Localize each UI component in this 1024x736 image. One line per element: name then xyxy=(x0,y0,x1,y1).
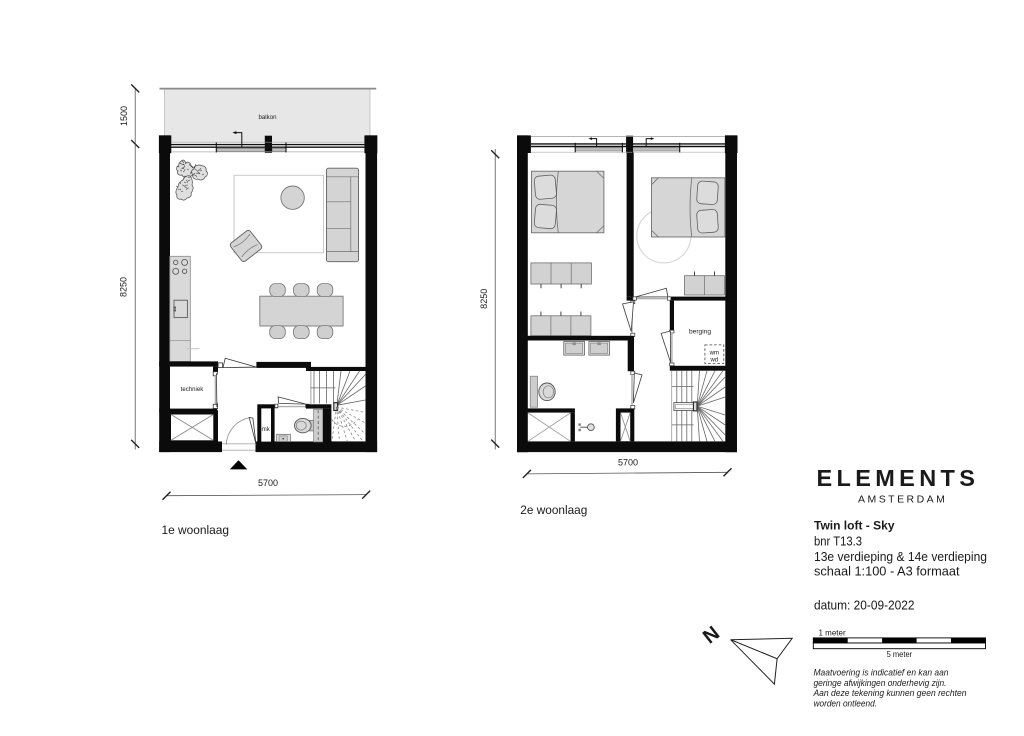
svg-text:5700: 5700 xyxy=(258,478,278,488)
svg-text:1500: 1500 xyxy=(119,106,129,126)
svg-text:2e woonlaag: 2e woonlaag xyxy=(520,503,587,517)
svg-text:berging: berging xyxy=(689,328,711,335)
svg-text:geringe afwijkingen onderhevig: geringe afwijkingen onderhevig zijn. xyxy=(814,678,947,688)
svg-text:1e woonlaag: 1e woonlaag xyxy=(162,523,230,537)
svg-text:wm: wm xyxy=(709,351,719,357)
svg-text:balkon: balkon xyxy=(259,114,277,121)
svg-text:Maatvoering is indicatief en k: Maatvoering is indicatief en kan aan xyxy=(814,668,949,678)
svg-text:AMSTERDAM: AMSTERDAM xyxy=(858,494,948,506)
svg-text:Aan deze tekening kunnen geen: Aan deze tekening kunnen geen rechten xyxy=(813,688,967,698)
svg-text:8250: 8250 xyxy=(119,277,129,297)
svg-text:mk: mk xyxy=(262,426,271,433)
svg-text:datum: 20-09-2022: datum: 20-09-2022 xyxy=(814,598,915,612)
svg-text:Twin loft - Sky: Twin loft - Sky xyxy=(814,518,895,532)
svg-text:5700: 5700 xyxy=(618,457,638,467)
svg-text:8250: 8250 xyxy=(479,289,489,309)
svg-text:techniek: techniek xyxy=(181,386,204,393)
svg-text:N: N xyxy=(699,622,724,648)
svg-text:bnr T13.3: bnr T13.3 xyxy=(814,535,862,549)
svg-text:schaal 1:100 - A3 formaat: schaal 1:100 - A3 formaat xyxy=(814,564,960,578)
svg-text:5 meter: 5 meter xyxy=(887,650,913,659)
svg-text:1 meter: 1 meter xyxy=(819,628,846,637)
svg-text:worden ontleend.: worden ontleend. xyxy=(814,699,878,709)
svg-text:13e verdieping & 14e verdiepin: 13e verdieping & 14e verdieping xyxy=(814,550,987,564)
svg-text:wd: wd xyxy=(709,358,718,364)
svg-text:ELEMENTS: ELEMENTS xyxy=(817,465,980,491)
